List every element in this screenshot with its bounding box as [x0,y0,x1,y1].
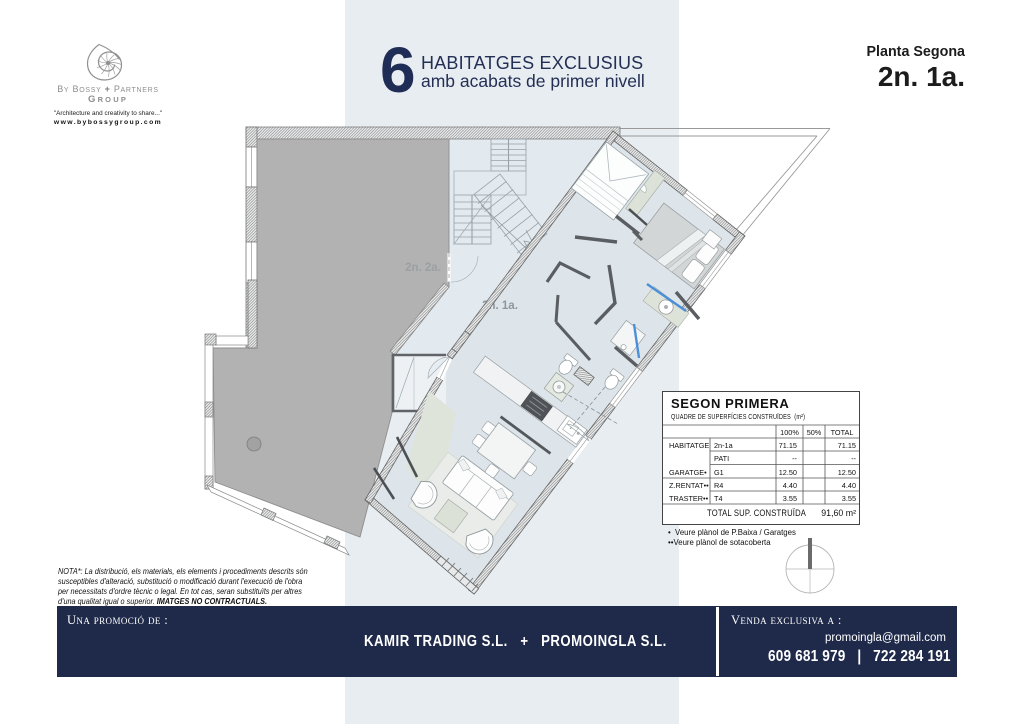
svg-text:2n. 2a.: 2n. 2a. [405,262,441,274]
